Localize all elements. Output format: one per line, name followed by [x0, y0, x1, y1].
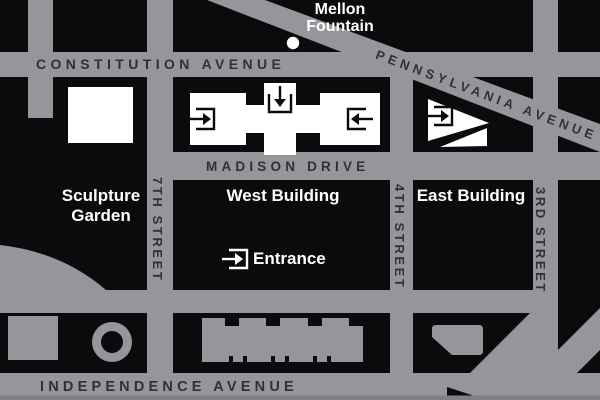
building-tick — [313, 356, 317, 362]
building-notch — [225, 318, 239, 326]
building-tick — [285, 356, 289, 362]
third-street-label: 3RD STREET — [533, 187, 548, 294]
ninth-street-south-stub-road — [28, 77, 53, 118]
sculpture-garden-pavilion — [68, 87, 133, 143]
constitution-avenue-label: CONSTITUTION AVENUE — [36, 56, 285, 72]
sculpture-garden-label: Sculpture Garden — [41, 186, 161, 226]
independence-avenue-label: INDEPENDENCE AVENUE — [40, 379, 298, 395]
west-building-label: West Building — [223, 186, 343, 206]
east-building-label: East Building — [411, 186, 531, 206]
fourth-street-label: 4TH STREET — [392, 184, 407, 289]
southwest-building — [8, 316, 58, 360]
building-notch — [349, 318, 363, 326]
entrance-legend-icon — [222, 250, 247, 268]
maryland-avenue-road-east — [558, 308, 600, 373]
ninth-street-north-stub-road — [28, 0, 53, 52]
mellon-fountain-label: Mellon Fountain — [285, 2, 395, 35]
building-notch — [266, 318, 280, 326]
building-tick — [271, 356, 275, 362]
building-tick — [327, 356, 331, 362]
nga-area-map: CONSTITUTION AVENUE PENNSYLVANIA AVENUE … — [0, 0, 600, 400]
hirshhorn-ring-building — [97, 327, 128, 358]
entrance-legend-label: Entrance — [253, 250, 326, 268]
building-notch — [308, 318, 322, 326]
building-tick — [229, 356, 233, 362]
rounded-building-east-of-fourth — [432, 325, 483, 355]
bottom-edge-strip — [0, 396, 600, 400]
madison-drive-label: MADISON DRIVE — [206, 159, 369, 174]
building-tick — [243, 356, 247, 362]
mellon-fountain-dot — [287, 37, 299, 49]
